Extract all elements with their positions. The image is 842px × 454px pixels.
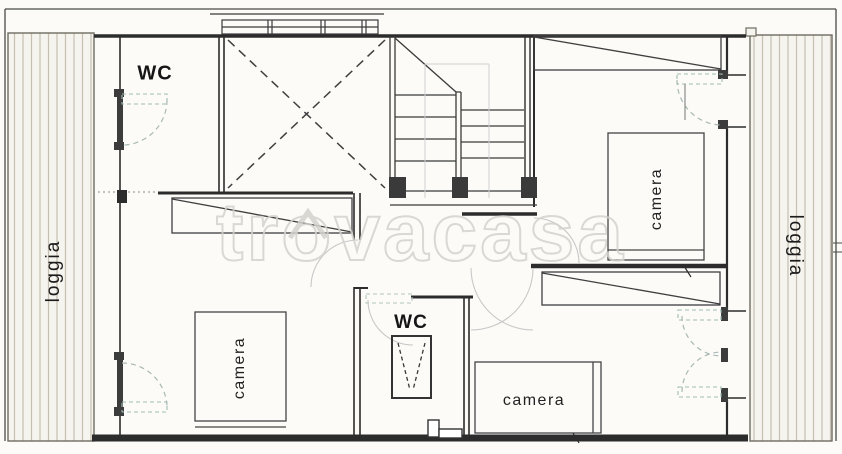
watermark-text: trovacasa <box>216 187 626 278</box>
watermark: trovacasa <box>216 187 626 278</box>
room-label-wc-bottom: WC <box>394 312 428 334</box>
beds <box>195 133 704 433</box>
door-top-left <box>114 89 167 150</box>
tick-marks <box>573 266 691 443</box>
room-label-camera-bottom-left: camera <box>231 337 249 399</box>
door-top-right <box>677 70 728 129</box>
room-label-camera-bottom-right: camera <box>503 392 565 410</box>
top-window <box>210 14 384 34</box>
room-label-loggia-right: loggia <box>784 215 806 278</box>
floor-plan: trovacasa WC WC camera camera camera log… <box>0 0 842 454</box>
void-cross <box>228 40 385 188</box>
staircase <box>389 36 537 205</box>
loggia-left-hatch <box>8 33 94 441</box>
door-bottom-left <box>114 352 167 416</box>
floor-plan-drawing: trovacasa <box>0 0 842 454</box>
room-label-wc-top: WC <box>137 63 172 86</box>
room-label-loggia-left: loggia <box>43 240 65 303</box>
door-bottom-right-double <box>678 307 728 402</box>
room-label-camera-top-right: camera <box>648 168 666 230</box>
wall-notch <box>428 420 462 438</box>
